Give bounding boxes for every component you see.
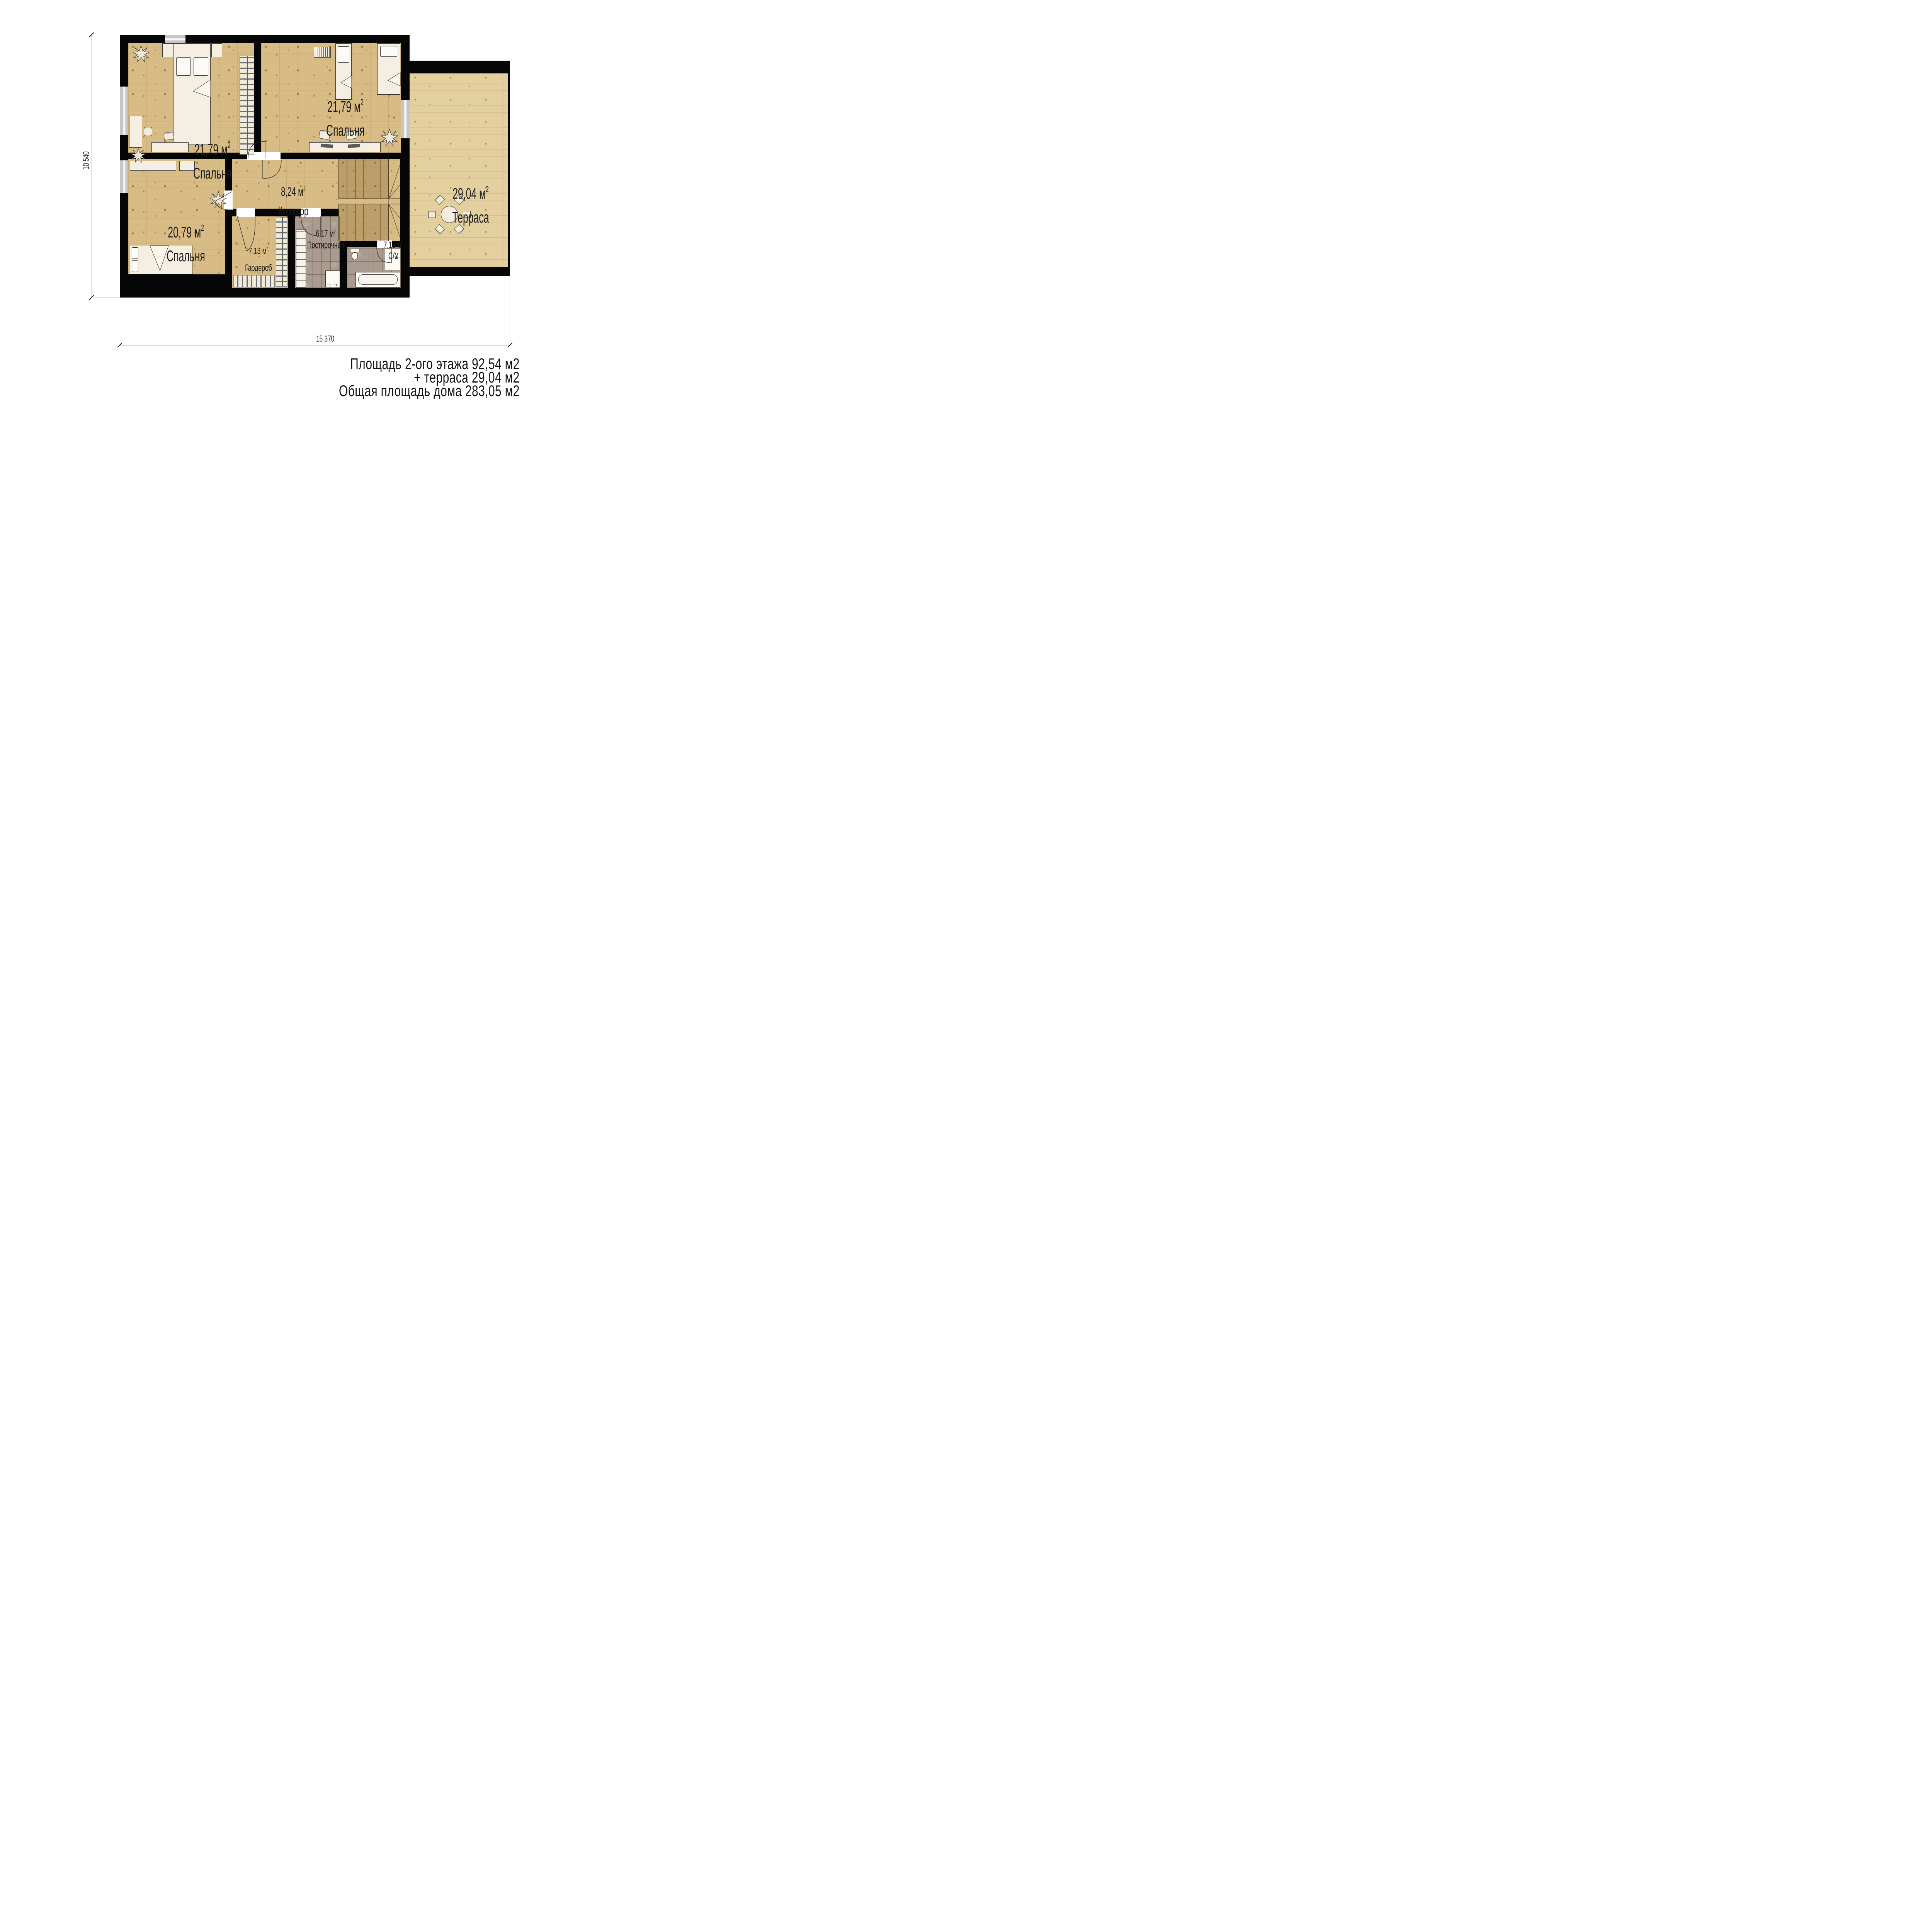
window-terrace-door [401,100,410,138]
dresser [314,47,331,58]
window-left-upper [120,87,128,135]
room-label-terrace: 29,04 м2 Терраса [424,177,517,230]
plant-icon [209,191,227,209]
extension-line [120,301,120,342]
pillow [176,57,191,76]
room-label-bedroom-3: 20,79 м2 Спальня [139,216,232,268]
room-area: 29,04 м2 [442,177,500,206]
room-area: 6,17 м2 [300,226,351,240]
room-area: 8,24 м2 [265,179,322,201]
clothes-rack [233,275,275,287]
summary-line-3: Общая площадь дома 283,05 м2 [279,384,520,398]
pillow [132,247,138,259]
desk [129,116,142,148]
nightstand [211,43,222,57]
window-left-lower [120,160,128,193]
stairs-upper-flight [338,159,389,199]
pillow [380,46,397,57]
room-name: Коридор [265,201,322,221]
room-area: 20,79 м2 [157,216,215,244]
room-name: С/У [368,251,419,262]
extension-line [95,298,120,298]
room-label-laundry: 6,17 м2 Постирочная [287,226,364,251]
room-label-corridor: 8,24 м2 Коридор [247,179,340,221]
dim-label-width: 15 370 [287,334,364,344]
extension-line [95,35,120,35]
room-name: Постирочная [300,240,351,251]
pillow [194,57,208,76]
room-area: 21,79 м2 [317,90,374,119]
room-name: Гардероб [233,260,284,277]
pillow [338,46,349,63]
floor-plan-canvas: 21,79 м2 Спальня 21,79 м2 Спальня 29,04 … [0,0,603,426]
room-area: 7,13 м2 [233,239,284,260]
room-label-bathroom: 7,13 м2 С/У [355,238,432,262]
plant-icon [132,45,150,63]
room-name: Спальня [317,119,374,143]
room-label-wardrobe: 7,13 м2 Гардероб [220,239,297,277]
dimension-line-horizontal [120,345,510,345]
pillow [132,260,138,272]
extension-line [510,279,510,342]
room-label-bedroom-1: 21,79 м2 Спальня [166,133,259,185]
chair [144,127,152,136]
dimension-line-vertical [92,35,92,298]
room-name: Спальня [184,162,241,185]
room-area: 21,79 м2 [184,133,241,162]
room-label-bedroom-2: 21,79 м2 Спальня [299,90,392,143]
desk [309,142,381,152]
room-area: 7,13 м2 [368,238,419,251]
bathtub-basin [358,274,398,285]
door-gap-bedroom-2 [262,152,281,160]
nightstand [162,43,173,57]
washing-machine-foot [334,284,337,286]
room-name: Терраса [442,206,500,230]
room-name: Спальня [157,244,215,268]
window-top-bedroom-1 [165,35,185,43]
washing-machine-foot [328,284,330,286]
dim-label-height: 10 540 [81,137,91,184]
area-summary: Площадь 2-ого этажа 92,54 м2 + терраса 2… [279,357,520,398]
plant-icon [131,148,146,163]
